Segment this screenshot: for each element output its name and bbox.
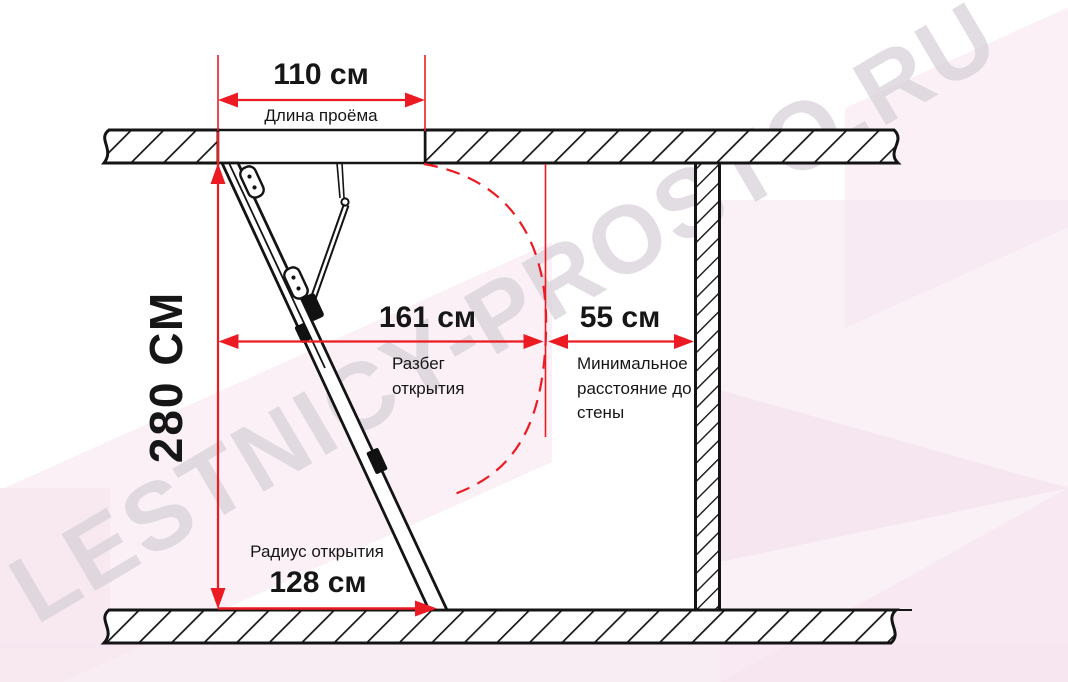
opening-radius-label: Радиус открытия xyxy=(227,540,407,565)
ladder-strut xyxy=(309,163,349,305)
opening-radius-value: 128 см xyxy=(238,566,398,600)
arrowhead-left xyxy=(548,334,568,349)
wall-distance-value: 55 см xyxy=(545,301,695,335)
opening-length-value: 110 см xyxy=(221,58,421,92)
dim-wall-distance xyxy=(548,334,694,349)
ceiling-opening xyxy=(218,130,425,163)
floor-slab xyxy=(104,610,896,643)
opening-length-label: Длина проёма xyxy=(221,104,421,129)
ceiling-height-value: 280 СМ xyxy=(139,217,199,537)
arrowhead-down xyxy=(211,588,226,609)
wall-distance-label: Минимальное расстояние до стены xyxy=(577,352,702,426)
arrowhead-right xyxy=(674,334,694,349)
attic-ladder-dimension-diagram: LESTNICY-PROSTO.RU xyxy=(0,0,1068,682)
ceiling-right-section xyxy=(425,130,898,163)
arrowhead-left xyxy=(219,334,239,349)
opening-span-value: 161 см xyxy=(330,301,525,335)
dim-ceiling-height xyxy=(211,132,226,609)
dim-opening-span xyxy=(219,334,544,349)
opening-span-label: Разбег открытия xyxy=(392,352,487,401)
strut-pivot xyxy=(341,198,348,205)
ceiling-slab xyxy=(104,130,898,163)
arrowhead-right xyxy=(524,334,544,349)
ceiling-left-section xyxy=(104,130,218,163)
